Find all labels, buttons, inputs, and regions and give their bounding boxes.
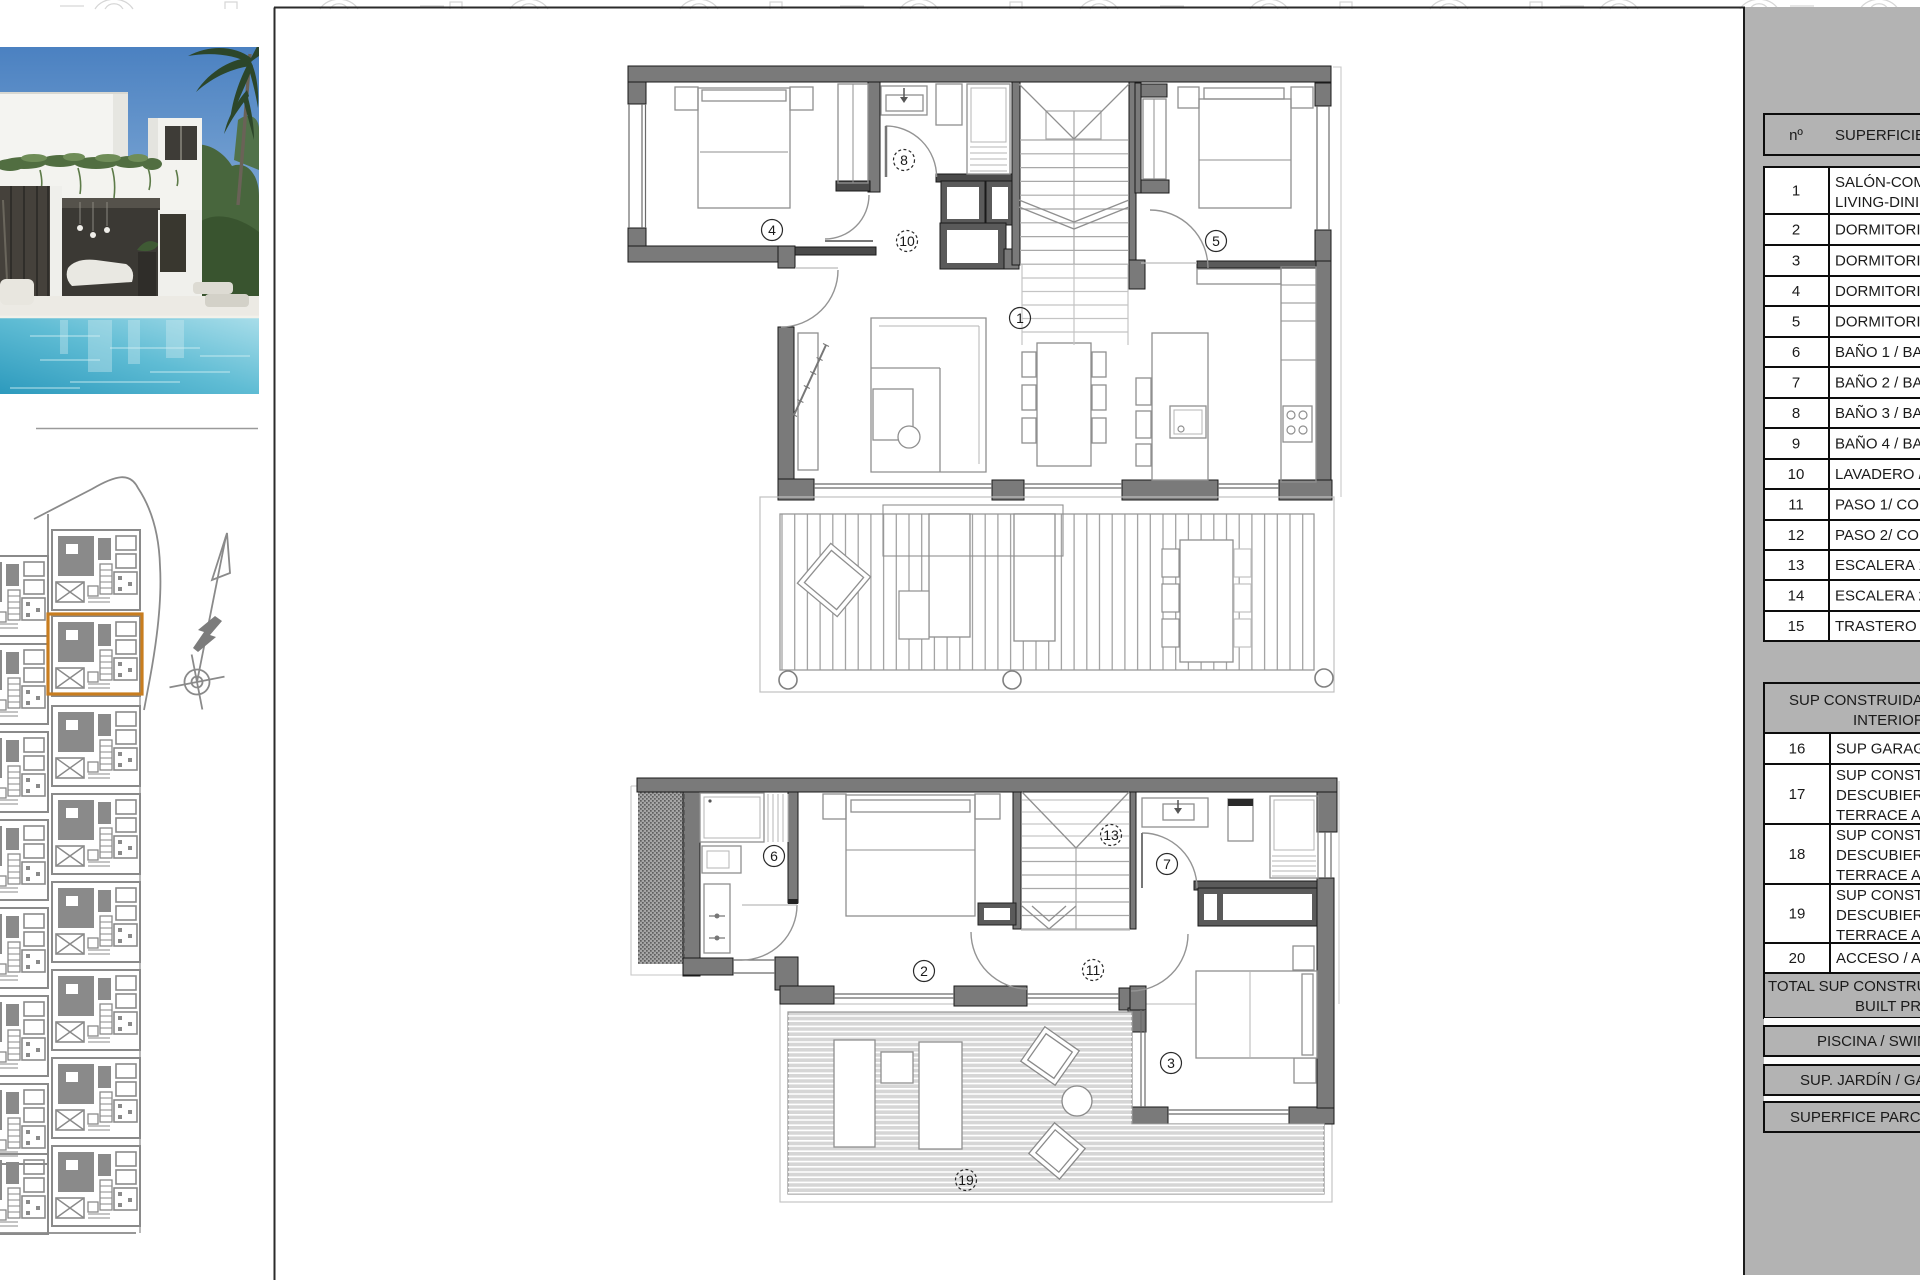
svg-text:SUP CONSTRUIDA TERRAZA: SUP CONSTRUIDA TERRAZA bbox=[1836, 827, 1920, 844]
svg-text:3: 3 bbox=[1167, 1055, 1175, 1071]
svg-text:12: 12 bbox=[1788, 527, 1805, 544]
svg-text:TERRACE AREA: TERRACE AREA bbox=[1836, 927, 1920, 944]
svg-text:8: 8 bbox=[900, 152, 908, 168]
svg-text:LAVADERO / LAUNDRY: LAVADERO / LAUNDRY bbox=[1835, 466, 1920, 483]
svg-text:DORMITORIO 4 / BEDROOM 4: DORMITORIO 4 / BEDROOM 4 bbox=[1835, 314, 1920, 331]
svg-text:10: 10 bbox=[1788, 466, 1805, 483]
svg-text:BUILT PRIVATE AREA: BUILT PRIVATE AREA bbox=[1855, 998, 1920, 1015]
svg-text:INTERIOR BUILT AREA: INTERIOR BUILT AREA bbox=[1853, 712, 1920, 729]
svg-text:nº: nº bbox=[1789, 127, 1803, 144]
svg-text:3: 3 bbox=[1792, 253, 1800, 270]
svg-text:2: 2 bbox=[920, 963, 928, 979]
svg-text:11: 11 bbox=[1788, 497, 1804, 514]
svg-text:7: 7 bbox=[1792, 375, 1800, 392]
svg-text:DESCUBIERTA / UNCOVERED: DESCUBIERTA / UNCOVERED bbox=[1836, 847, 1920, 864]
svg-text:DORMITORIO 1 / BEDROOM 1: DORMITORIO 1 / BEDROOM 1 bbox=[1835, 222, 1920, 239]
svg-text:18: 18 bbox=[1789, 846, 1806, 863]
svg-text:SUP CONSTRUIDA INTERIOR /: SUP CONSTRUIDA INTERIOR / bbox=[1789, 692, 1920, 709]
svg-text:PISCINA / SWIMMING POOL: PISCINA / SWIMMING POOL bbox=[1817, 1033, 1920, 1050]
svg-text:19: 19 bbox=[958, 1172, 974, 1188]
svg-text:9: 9 bbox=[1792, 436, 1800, 453]
svg-text:LIVING-DINING ROOM / KITCHEN: LIVING-DINING ROOM / KITCHEN bbox=[1835, 194, 1920, 211]
svg-text:ESCALERA 2 / STAIRS 2: ESCALERA 2 / STAIRS 2 bbox=[1835, 588, 1920, 605]
svg-text:13: 13 bbox=[1788, 557, 1805, 574]
svg-text:10: 10 bbox=[899, 233, 915, 249]
svg-text:BAÑO 2 / BATHROOM 2: BAÑO 2 / BATHROOM 2 bbox=[1835, 375, 1920, 392]
svg-text:TOTAL SUP CONSTRUIDA PRIVATIVA: TOTAL SUP CONSTRUIDA PRIVATIVA / bbox=[1768, 978, 1920, 995]
svg-text:16: 16 bbox=[1789, 741, 1806, 758]
svg-text:8: 8 bbox=[1792, 405, 1800, 422]
svg-text:SUP. JARDÍN / GARDEN AREA: SUP. JARDÍN / GARDEN AREA bbox=[1800, 1072, 1920, 1089]
svg-text:2: 2 bbox=[1792, 222, 1800, 239]
svg-text:1: 1 bbox=[1792, 183, 1800, 200]
svg-text:DORMITORIO 3 / BEDROOM 3: DORMITORIO 3 / BEDROOM 3 bbox=[1835, 283, 1920, 300]
svg-text:ESCALERA 1 / STAIRS 1: ESCALERA 1 / STAIRS 1 bbox=[1835, 557, 1920, 574]
svg-text:1: 1 bbox=[1016, 310, 1024, 326]
svg-text:5: 5 bbox=[1212, 233, 1220, 249]
svg-text:17: 17 bbox=[1789, 786, 1806, 803]
svg-text:SUP GARAGE/ GARAGE AREA: SUP GARAGE/ GARAGE AREA bbox=[1836, 741, 1920, 758]
svg-text:PASO 2/ CORREDOR 2: PASO 2/ CORREDOR 2 bbox=[1835, 527, 1920, 544]
svg-text:15: 15 bbox=[1788, 618, 1805, 635]
svg-text:SUP CONSTRUIDA TERRAZA: SUP CONSTRUIDA TERRAZA bbox=[1836, 887, 1920, 904]
svg-text:13: 13 bbox=[1103, 827, 1119, 843]
svg-text:SUPERFICE PARCELA / PLOT AREA: SUPERFICE PARCELA / PLOT AREA bbox=[1790, 1109, 1920, 1126]
svg-text:BAÑO 1 / BATHROOM 1: BAÑO 1 / BATHROOM 1 bbox=[1835, 344, 1920, 361]
svg-text:SUP CONSTRUIDA TERRAZA: SUP CONSTRUIDA TERRAZA bbox=[1836, 767, 1920, 784]
svg-text:BAÑO 3 / BATHROOM 3: BAÑO 3 / BATHROOM 3 bbox=[1835, 405, 1920, 422]
svg-text:DESCUBIERTA / UNCOVERED: DESCUBIERTA / UNCOVERED bbox=[1836, 907, 1920, 924]
svg-text:TRASTERO / STORAGE: TRASTERO / STORAGE bbox=[1835, 618, 1920, 635]
svg-text:PASO 1/ CORREDOR 1: PASO 1/ CORREDOR 1 bbox=[1835, 497, 1920, 514]
svg-text:4: 4 bbox=[1792, 283, 1800, 300]
svg-text:11: 11 bbox=[1086, 962, 1101, 978]
svg-text:6: 6 bbox=[770, 848, 778, 864]
svg-text:7: 7 bbox=[1163, 856, 1171, 872]
svg-text:SALÓN-COMEDOR / COCINA: SALÓN-COMEDOR / COCINA bbox=[1835, 174, 1920, 191]
svg-text:TERRACE AREA: TERRACE AREA bbox=[1836, 867, 1920, 884]
svg-text:6: 6 bbox=[1792, 344, 1800, 361]
svg-text:4: 4 bbox=[768, 222, 776, 238]
svg-text:SUPERFICIE ÚTIL / USEFUL AREA: SUPERFICIE ÚTIL / USEFUL AREA bbox=[1835, 127, 1920, 144]
svg-text:19: 19 bbox=[1789, 906, 1806, 923]
svg-text:ACCESO / ACCESS: ACCESO / ACCESS bbox=[1836, 950, 1920, 967]
svg-text:5: 5 bbox=[1792, 314, 1800, 331]
svg-text:DESCUBIERTA / UNCOVERED: DESCUBIERTA / UNCOVERED bbox=[1836, 787, 1920, 804]
svg-text:BAÑO 4 / BATHROOM 4: BAÑO 4 / BATHROOM 4 bbox=[1835, 436, 1920, 453]
svg-text:TERRACE AREA: TERRACE AREA bbox=[1836, 807, 1920, 824]
svg-text:20: 20 bbox=[1789, 950, 1806, 967]
svg-text:DORMITORIO 2 / BEDROOM 2: DORMITORIO 2 / BEDROOM 2 bbox=[1835, 253, 1920, 270]
svg-text:14: 14 bbox=[1788, 588, 1805, 605]
